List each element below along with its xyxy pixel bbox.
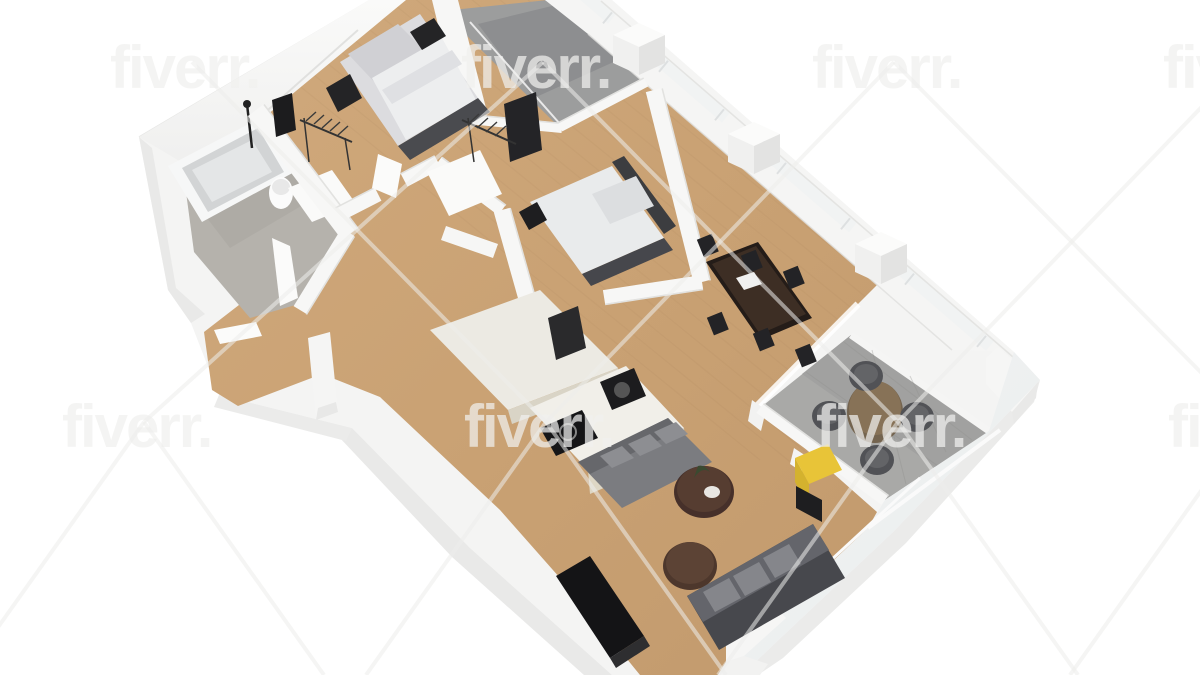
svg-text:fiverr.: fiverr. (110, 34, 259, 101)
svg-text:fiverr.: fiverr. (62, 393, 211, 460)
svg-text:fiverr.: fiverr. (1168, 393, 1200, 460)
svg-text:fiverr.: fiverr. (816, 393, 965, 460)
svg-text:fiverr.: fiverr. (1163, 34, 1200, 101)
svg-text:fiverr.: fiverr. (464, 393, 613, 460)
